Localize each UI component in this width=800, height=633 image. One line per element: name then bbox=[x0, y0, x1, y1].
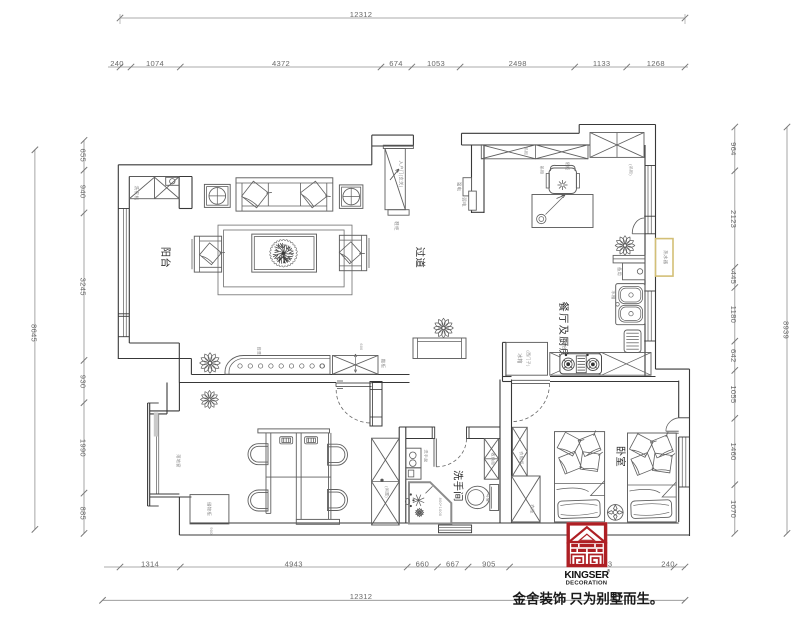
svg-text:900: 900 bbox=[209, 527, 213, 534]
svg-text:鞋柜: 鞋柜 bbox=[393, 221, 400, 231]
svg-text:强电: 强电 bbox=[456, 182, 463, 192]
svg-text:洗手间: 洗手间 bbox=[452, 470, 465, 502]
svg-text:灶台: 灶台 bbox=[561, 341, 568, 350]
svg-text:642: 642 bbox=[729, 349, 738, 363]
svg-text:12312: 12312 bbox=[350, 592, 373, 601]
svg-text:1268: 1268 bbox=[647, 59, 665, 68]
svg-text:入户门(玄关): 入户门(玄关) bbox=[398, 161, 405, 188]
svg-text:1180: 1180 bbox=[729, 306, 738, 324]
svg-text:阳台: 阳台 bbox=[159, 247, 172, 268]
svg-text:储物柜: 储物柜 bbox=[206, 502, 213, 516]
svg-text:弱电: 弱电 bbox=[461, 197, 468, 207]
svg-text:鞋凳: 鞋凳 bbox=[257, 347, 262, 355]
svg-text:DECORATION: DECORATION bbox=[566, 581, 608, 587]
svg-text:1053: 1053 bbox=[427, 59, 445, 68]
svg-text:洗手盆: 洗手盆 bbox=[424, 450, 430, 463]
svg-text:905: 905 bbox=[482, 559, 496, 568]
svg-text:1314: 1314 bbox=[141, 559, 159, 568]
svg-text:1070: 1070 bbox=[729, 500, 738, 518]
svg-text:卧室: 卧室 bbox=[614, 446, 627, 467]
svg-text:655: 655 bbox=[79, 149, 88, 163]
svg-text:660: 660 bbox=[416, 559, 430, 568]
svg-text:2123: 2123 bbox=[729, 210, 738, 228]
svg-text:12312: 12312 bbox=[350, 10, 373, 19]
svg-text:吊柜: 吊柜 bbox=[524, 147, 530, 156]
svg-text:衣帽柜: 衣帽柜 bbox=[518, 451, 525, 464]
svg-text:1074: 1074 bbox=[146, 59, 164, 68]
svg-text:(西门子): (西门子) bbox=[526, 350, 532, 367]
svg-text:(吊柜): (吊柜) bbox=[629, 164, 635, 176]
svg-text:2498: 2498 bbox=[509, 59, 527, 68]
svg-text:4943: 4943 bbox=[285, 559, 303, 568]
svg-text:4372: 4372 bbox=[272, 59, 290, 68]
svg-text:落地窗: 落地窗 bbox=[175, 454, 182, 467]
svg-text:1460: 1460 bbox=[729, 442, 738, 460]
svg-text:热水器: 热水器 bbox=[662, 250, 669, 264]
svg-text:667: 667 bbox=[446, 559, 460, 568]
svg-text:1990: 1990 bbox=[79, 439, 88, 457]
svg-text:冰箱: 冰箱 bbox=[516, 353, 523, 364]
svg-text:800*1000: 800*1000 bbox=[438, 498, 442, 517]
svg-text:240: 240 bbox=[110, 59, 124, 68]
svg-text:600: 600 bbox=[359, 344, 363, 351]
svg-text:吊柜: 吊柜 bbox=[539, 166, 546, 175]
svg-text:(闲置): (闲置) bbox=[385, 486, 391, 498]
svg-text:674: 674 bbox=[389, 59, 403, 68]
svg-text:930: 930 bbox=[79, 375, 88, 389]
svg-text:衣柜: 衣柜 bbox=[529, 504, 536, 514]
svg-text:备用: 备用 bbox=[616, 267, 623, 276]
svg-text:洗衣机: 洗衣机 bbox=[133, 186, 140, 201]
svg-text:240: 240 bbox=[661, 559, 675, 568]
svg-text:马桶: 马桶 bbox=[486, 493, 492, 502]
svg-text:3245: 3245 bbox=[79, 278, 88, 296]
svg-text:吊柜: 吊柜 bbox=[564, 162, 571, 171]
svg-text:过道: 过道 bbox=[414, 247, 427, 268]
svg-text:水槽: 水槽 bbox=[610, 291, 617, 300]
svg-text:1055: 1055 bbox=[729, 385, 738, 403]
svg-text:940: 940 bbox=[79, 185, 88, 199]
svg-text:445: 445 bbox=[729, 271, 738, 285]
svg-text:964: 964 bbox=[729, 142, 738, 156]
svg-text:收纳柜: 收纳柜 bbox=[491, 453, 497, 466]
svg-text:KINGSER: KINGSER bbox=[564, 570, 609, 581]
svg-text:1133: 1133 bbox=[593, 59, 611, 68]
svg-text:餐厅及厨房: 餐厅及厨房 bbox=[557, 302, 570, 360]
svg-text:8939: 8939 bbox=[782, 321, 791, 339]
svg-text:885: 885 bbox=[79, 507, 88, 521]
svg-text:8645: 8645 bbox=[30, 324, 39, 342]
svg-text:金舍装饰 只为别墅而生。: 金舍装饰 只为别墅而生。 bbox=[512, 591, 664, 607]
svg-text:鞋柜: 鞋柜 bbox=[380, 359, 387, 369]
